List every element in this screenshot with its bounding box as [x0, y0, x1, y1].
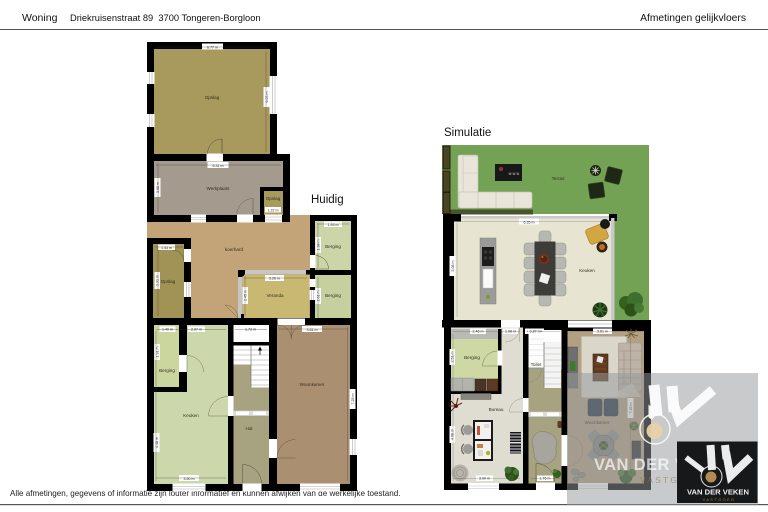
svg-text:Simulatie: Simulatie: [444, 127, 491, 139]
svg-text:1.43 m: 1.43 m: [161, 246, 172, 250]
svg-text:Huidig: Huidig: [311, 194, 344, 206]
svg-text:Berging: Berging: [464, 355, 480, 360]
svg-text:3.26 m: 3.26 m: [269, 277, 280, 281]
svg-text:2.61 m: 2.61 m: [317, 291, 321, 302]
svg-text:6.31 m: 6.31 m: [213, 164, 224, 168]
svg-text:Opslag: Opslag: [266, 196, 281, 201]
svg-text:1.76 m: 1.76 m: [540, 477, 551, 481]
svg-text:1.91 m: 1.91 m: [156, 347, 160, 358]
svg-text:3.31 m: 3.31 m: [156, 275, 160, 286]
svg-text:Hal: Hal: [246, 426, 253, 431]
svg-text:Berging: Berging: [159, 368, 175, 373]
svg-text:1.22 m: 1.22 m: [268, 208, 279, 212]
svg-text:1.93 m: 1.93 m: [328, 223, 339, 227]
svg-text:Afmetingen gelijkvloers: Afmetingen gelijkvloers: [640, 13, 746, 24]
svg-text:1.08 m: 1.08 m: [505, 330, 516, 334]
svg-text:5.08 m: 5.08 m: [451, 261, 455, 272]
svg-text:Toilet: Toilet: [531, 362, 542, 367]
svg-text:Keuken: Keuken: [183, 413, 199, 418]
svg-text:Woning: Woning: [22, 12, 58, 24]
svg-text:1.38 m: 1.38 m: [317, 240, 321, 251]
svg-text:3.61 m: 3.61 m: [597, 330, 608, 334]
svg-text:2.46 m: 2.46 m: [473, 330, 484, 334]
svg-text:6.03 m: 6.03 m: [265, 92, 269, 103]
svg-text:Berging: Berging: [325, 244, 341, 249]
svg-text:Opslag: Opslag: [161, 279, 176, 284]
svg-text:2.45 m: 2.45 m: [244, 290, 248, 301]
svg-text:koerhard: koerhard: [225, 247, 244, 252]
svg-text:Bureau: Bureau: [489, 407, 504, 412]
svg-text:Keuken: Keuken: [579, 268, 595, 273]
svg-text:7.25 m: 7.25 m: [351, 394, 355, 405]
svg-text:3.00 m: 3.00 m: [479, 477, 490, 481]
svg-text:4.48 m: 4.48 m: [155, 437, 159, 448]
svg-text:3.50 m: 3.50 m: [184, 477, 195, 481]
svg-text:+-0.87 m+: +-0.87 m+: [526, 330, 542, 334]
svg-text:4.08 m: 4.08 m: [451, 429, 455, 440]
svg-text:6.35 m: 6.35 m: [524, 220, 535, 224]
svg-text:2.51 m: 2.51 m: [451, 352, 455, 363]
svg-text:VASTGOED: VASTGOED: [703, 498, 736, 502]
svg-text:Woonkamer: Woonkamer: [300, 382, 325, 387]
svg-text:6.77 m: 6.77 m: [207, 45, 218, 49]
svg-text:Berging: Berging: [325, 293, 341, 298]
svg-text:Veranda: Veranda: [266, 293, 284, 298]
svg-text:Driekruisenstraat 89 3700 Ton: Driekruisenstraat 89 3700 Tongeren-Borgl…: [70, 13, 261, 23]
svg-text:Terras: Terras: [552, 176, 565, 181]
svg-text:3.61 m: 3.61 m: [307, 328, 318, 332]
svg-text:VAN DER VEKEN: VAN DER VEKEN: [687, 488, 749, 497]
svg-text:Opslag: Opslag: [205, 95, 220, 100]
svg-text:Werkplaats: Werkplaats: [207, 186, 231, 191]
